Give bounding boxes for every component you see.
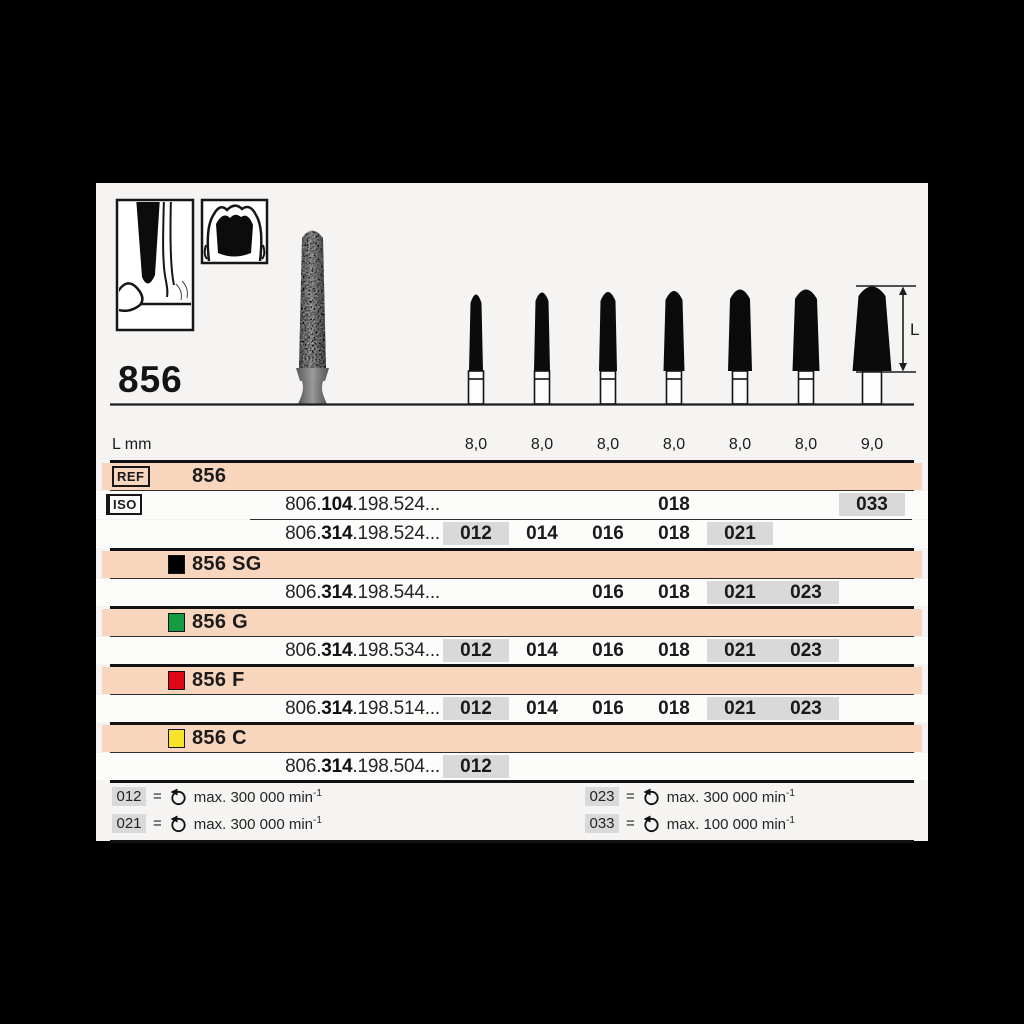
product-band-856f: 856 F (102, 667, 922, 694)
size-code-cell: 016 (575, 581, 641, 604)
size-code-cell: 021 (707, 581, 773, 604)
speed-legend-item: 033 = max. 100 000 min-1 (585, 814, 795, 833)
grit-color-swatch (168, 671, 185, 690)
ref-band: REF 856 (102, 463, 922, 490)
speed-legend-item: 023 = max. 300 000 min-1 (585, 787, 795, 806)
product-name: 856 F (192, 669, 245, 692)
size-code-cell: 023 (773, 581, 839, 604)
size-code: 012 (112, 787, 146, 806)
grit-color-swatch (168, 613, 185, 632)
product-name: 856 SG (192, 553, 262, 576)
size-code-cell: 021 (707, 639, 773, 662)
length-dimension-label: L (910, 320, 919, 339)
iso-row: 806.314.198.524... 012 014 016 018 021 (96, 520, 928, 548)
iso-row: 806.314.198.544... 016 018 021 023 (96, 579, 928, 606)
bur-silhouettes (469, 287, 892, 372)
size-code-cell: 018 (641, 697, 707, 720)
divider (110, 840, 914, 843)
product-band-856g: 856 G (102, 609, 922, 636)
size-code-cell: 016 (575, 522, 641, 545)
size-code: 033 (585, 814, 619, 833)
size-code-cell: 014 (509, 697, 575, 720)
iso-code: 806.314.198.534... (96, 640, 440, 662)
equals-sign: = (153, 815, 162, 832)
iso-row: 806.314.198.504... 012 (96, 753, 928, 780)
size-code-cell: 014 (509, 522, 575, 545)
ref-value: 856 (192, 465, 226, 488)
rotation-speed-icon (169, 815, 187, 833)
size-code-cell: 033 (839, 493, 905, 516)
size-code-cell: 018 (641, 522, 707, 545)
product-name: 856 C (192, 727, 247, 750)
size-row: L mm 8,0 8,0 8,0 8,0 8,0 8,0 9,0 (96, 434, 928, 456)
iso-row: 806.314.198.514... 012 014 016 018 021 0… (96, 695, 928, 722)
prep-margin-illustration (115, 197, 193, 330)
size-code: 023 (585, 787, 619, 806)
size-value: 8,0 (773, 436, 839, 454)
size-code-cell: 021 (707, 522, 773, 545)
bur-photo (296, 231, 329, 405)
bur-diagram-graphics: L (96, 183, 928, 433)
speed-text: max. 100 000 min-1 (667, 815, 795, 833)
iso-code: 806.314.198.524... (96, 523, 440, 545)
product-band-856c: 856 C (102, 725, 922, 752)
speed-legend-item: 012 = max. 300 000 min-1 (112, 787, 322, 806)
speed-text: max. 300 000 min-1 (667, 788, 795, 806)
size-code-cell: 012 (443, 755, 509, 778)
size-value: 8,0 (443, 436, 509, 454)
bur-shanks (469, 371, 882, 404)
size-row-label: L mm (112, 436, 151, 454)
size-value: 8,0 (509, 436, 575, 454)
size-code-cell: 018 (641, 639, 707, 662)
speed-text: max. 300 000 min-1 (194, 788, 322, 806)
size-code-cell: 018 (641, 581, 707, 604)
equals-sign: = (626, 788, 635, 805)
size-code-cell: 012 (443, 697, 509, 720)
rotation-speed-icon (642, 815, 660, 833)
ref-tag: REF (112, 466, 150, 487)
size-value: 9,0 (839, 436, 905, 454)
equals-sign: = (626, 815, 635, 832)
product-name: 856 G (192, 611, 248, 634)
iso-row: ISO 806.104.198.524... 018 033 (96, 491, 928, 519)
equals-sign: = (153, 788, 162, 805)
size-code-cell: 012 (443, 522, 509, 545)
crown-illustration (202, 200, 267, 263)
iso-code: 806.314.198.504... (96, 756, 440, 778)
size-code-cell: 018 (641, 493, 707, 516)
iso-row: 806.314.198.534... 012 014 016 018 021 0… (96, 637, 928, 664)
figure-number: 856 (118, 359, 183, 401)
size-code: 021 (112, 814, 146, 833)
header-diagram-area: L 856 L mm 8,0 8,0 8,0 8,0 8,0 8,0 9,0 (96, 183, 928, 460)
speed-legend-item: 021 = max. 300 000 min-1 (112, 814, 322, 833)
product-band-856sg: 856 SG (102, 551, 922, 578)
size-code-cell: 016 (575, 697, 641, 720)
iso-code: 806.314.198.514... (96, 698, 440, 720)
size-code-cell: 014 (509, 639, 575, 662)
rotation-speed-icon (642, 788, 660, 806)
size-value: 8,0 (575, 436, 641, 454)
rotation-speed-icon (169, 788, 187, 806)
size-value: 8,0 (641, 436, 707, 454)
iso-code: 806.314.198.544... (96, 582, 440, 604)
size-code-cell: 016 (575, 639, 641, 662)
size-value: 8,0 (707, 436, 773, 454)
size-code-cell: 023 (773, 697, 839, 720)
speed-text: max. 300 000 min-1 (194, 815, 322, 833)
speed-legend: 012 = max. 300 000 min-1 023 = max. 300 … (96, 783, 928, 840)
size-code-cell: 012 (443, 639, 509, 662)
grit-color-swatch (168, 555, 185, 574)
catalog-page: L 856 L mm 8,0 8,0 8,0 8,0 8,0 8,0 9,0 R… (96, 183, 928, 841)
grit-color-swatch (168, 729, 185, 748)
size-code-cell: 021 (707, 697, 773, 720)
size-code-cell: 023 (773, 639, 839, 662)
iso-code: 806.104.198.524... (96, 494, 440, 516)
